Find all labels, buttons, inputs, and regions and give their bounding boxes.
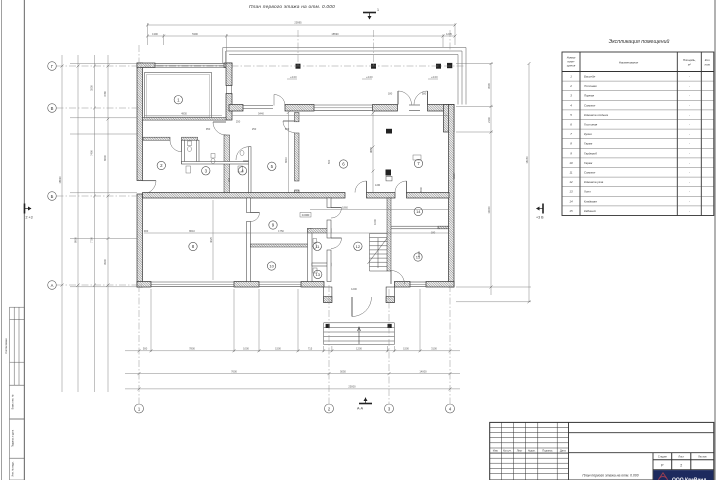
svg-text:План первого этажа на отм. 0.0: План первого этажа на отм. 0.000 [249,4,335,10]
svg-text:-: - [689,171,690,175]
svg-text:2: 2 [680,464,682,468]
svg-text:-: - [689,151,690,155]
svg-text:950: 950 [206,127,211,131]
svg-text:7700: 7700 [90,237,94,243]
svg-text:5050: 5050 [340,369,346,373]
svg-text:-: - [689,75,690,79]
svg-text:1205: 1205 [446,32,452,36]
svg-text:Комната узла: Комната узла [584,180,604,184]
svg-text:+3 В: +3 В [536,216,544,220]
svg-text:Гардероб: Гардероб [584,151,597,155]
svg-text:Согласовано: Согласовано [4,338,8,354]
svg-text:щения: щения [567,64,576,68]
svg-text:18630: 18630 [58,176,62,184]
svg-text:2140: 2140 [487,117,491,123]
svg-text:180: 180 [388,91,393,95]
svg-text:11: 11 [569,171,572,175]
svg-text:3530: 3530 [90,85,94,91]
svg-text:-: - [689,132,690,136]
svg-text:Дата: Дата [560,449,566,453]
svg-text:Подпись: Подпись [542,449,553,453]
svg-text:Инв. № подл.: Инв. № подл. [12,461,15,476]
svg-text:14: 14 [569,199,573,203]
svg-text:580: 580 [422,91,427,95]
svg-text:3540: 3540 [419,187,423,193]
svg-text:Парная: Парная [584,94,595,98]
svg-text:1: 1 [377,8,379,12]
svg-text:6610: 6610 [452,173,456,179]
svg-text:10: 10 [569,161,573,165]
svg-text:+4.00: +4.00 [290,75,297,79]
svg-text:Площадь,: Площадь, [683,58,696,62]
svg-text:Стадия: Стадия [658,455,667,459]
svg-text:Кол.уч.: Кол.уч. [503,449,512,453]
svg-text:+4.00: +4.00 [366,75,373,79]
svg-text:6610: 6610 [284,157,288,163]
svg-text:7600: 7600 [231,369,237,373]
svg-text:900: 900 [144,229,149,233]
svg-text:1000: 1000 [373,219,377,225]
svg-text:14000: 14000 [419,369,427,373]
svg-text:3545: 3545 [487,83,491,89]
svg-text:Санузел: Санузел [584,171,596,175]
svg-text:Топочная: Топочная [584,84,597,88]
svg-text:-: - [689,113,690,117]
svg-text:250: 250 [252,127,257,131]
svg-text:Экспликация помещений: Экспликация помещений [609,38,670,45]
svg-text:12: 12 [356,244,361,249]
svg-text:13: 13 [315,272,320,277]
svg-text:500: 500 [327,159,331,164]
svg-text:25995: 25995 [294,21,302,25]
svg-text:Листов: Листов [698,455,707,459]
svg-text:Подпись и дата: Подпись и дата [12,429,15,447]
svg-text:3100: 3100 [431,347,437,351]
svg-text:Комната отдыха: Комната отдыха [584,113,608,117]
svg-text:500: 500 [143,347,148,351]
svg-text:-: - [689,123,690,127]
svg-text:14: 14 [416,209,421,214]
svg-text:860: 860 [285,127,290,131]
svg-text:4025: 4025 [209,237,213,243]
svg-text:16150: 16150 [525,156,529,164]
svg-text:Кухня: Кухня [584,132,592,136]
svg-text:Холл: Холл [583,190,591,194]
svg-text:13000: 13000 [487,206,491,214]
svg-text:12: 12 [569,180,573,184]
svg-text:Изм.: Изм. [493,449,499,453]
svg-text:-: - [689,209,690,213]
svg-text:Гараж: Гараж [584,142,593,146]
svg-text:-: - [689,84,690,88]
svg-text:180: 180 [431,231,436,235]
svg-text:2 +3: 2 +3 [26,216,33,220]
svg-text:5390: 5390 [192,32,198,36]
svg-text:18590: 18590 [331,32,339,36]
svg-text:1200: 1200 [351,287,357,291]
svg-text:4780: 4780 [103,91,107,97]
svg-text:-: - [689,103,690,107]
svg-text:0.000: 0.000 [302,213,310,217]
svg-text:Бассейн: Бассейн [584,75,596,79]
svg-text:1390: 1390 [152,32,158,36]
svg-text:6600: 6600 [103,155,107,161]
svg-text:8610: 8610 [189,229,195,233]
svg-text:План первого этажа на отм. 0.0: План первого этажа на отм. 0.000 [582,474,638,478]
svg-text:-: - [689,190,690,194]
svg-text:-: - [689,94,690,98]
svg-text:1200: 1200 [356,347,362,351]
svg-text:7800: 7800 [189,347,195,351]
svg-text:250: 250 [236,120,241,124]
svg-text:Гараж: Гараж [584,161,593,165]
svg-text:№док.: №док. [528,450,536,453]
svg-text:Б: Б [51,194,54,199]
svg-text:Кабинет: Кабинет [584,209,597,213]
svg-text:1750: 1750 [278,229,284,233]
svg-text:1500: 1500 [275,347,281,351]
svg-text:250: 250 [227,177,231,182]
svg-text:-: - [689,142,690,146]
svg-text:Кладовая: Кладовая [584,199,597,203]
svg-text:-: - [689,180,690,184]
svg-text:3900: 3900 [103,259,107,265]
svg-text:5440: 5440 [258,112,264,116]
svg-text:Взам. инв. №: Взам. инв. № [12,394,15,409]
svg-text:10: 10 [269,264,274,269]
svg-text:3650: 3650 [369,147,373,153]
svg-text:1000: 1000 [243,347,249,351]
svg-text:Лист: Лист [517,449,523,453]
svg-text:4140: 4140 [417,251,421,257]
svg-text:+4.00: +4.00 [431,75,438,79]
svg-text:-: - [689,161,690,165]
svg-text:Кол.: Кол. [705,58,711,62]
svg-text:4.00: 4.00 [375,183,381,187]
svg-text:4930: 4930 [181,112,187,116]
svg-text:15: 15 [569,209,573,213]
svg-text:пом.: пом. [705,63,711,67]
svg-text:-: - [689,199,690,203]
svg-text:Лист: Лист [678,455,684,459]
svg-text:8900: 8900 [74,237,78,243]
svg-text:7400: 7400 [90,150,94,156]
svg-text:А: А [51,283,54,288]
svg-text:1860: 1860 [342,206,348,210]
svg-text:Гостиная: Гостиная [584,123,598,127]
svg-text:В: В [51,106,54,111]
svg-text:Наименование: Наименование [619,61,639,65]
svg-text:Санузел: Санузел [584,103,596,107]
svg-text:А-А: А-А [357,407,364,411]
svg-text:13: 13 [569,190,573,194]
svg-text:1500: 1500 [403,347,409,351]
svg-text:2: 2 [569,84,572,88]
svg-text:25000: 25000 [348,385,356,389]
svg-text:715: 715 [308,347,313,351]
